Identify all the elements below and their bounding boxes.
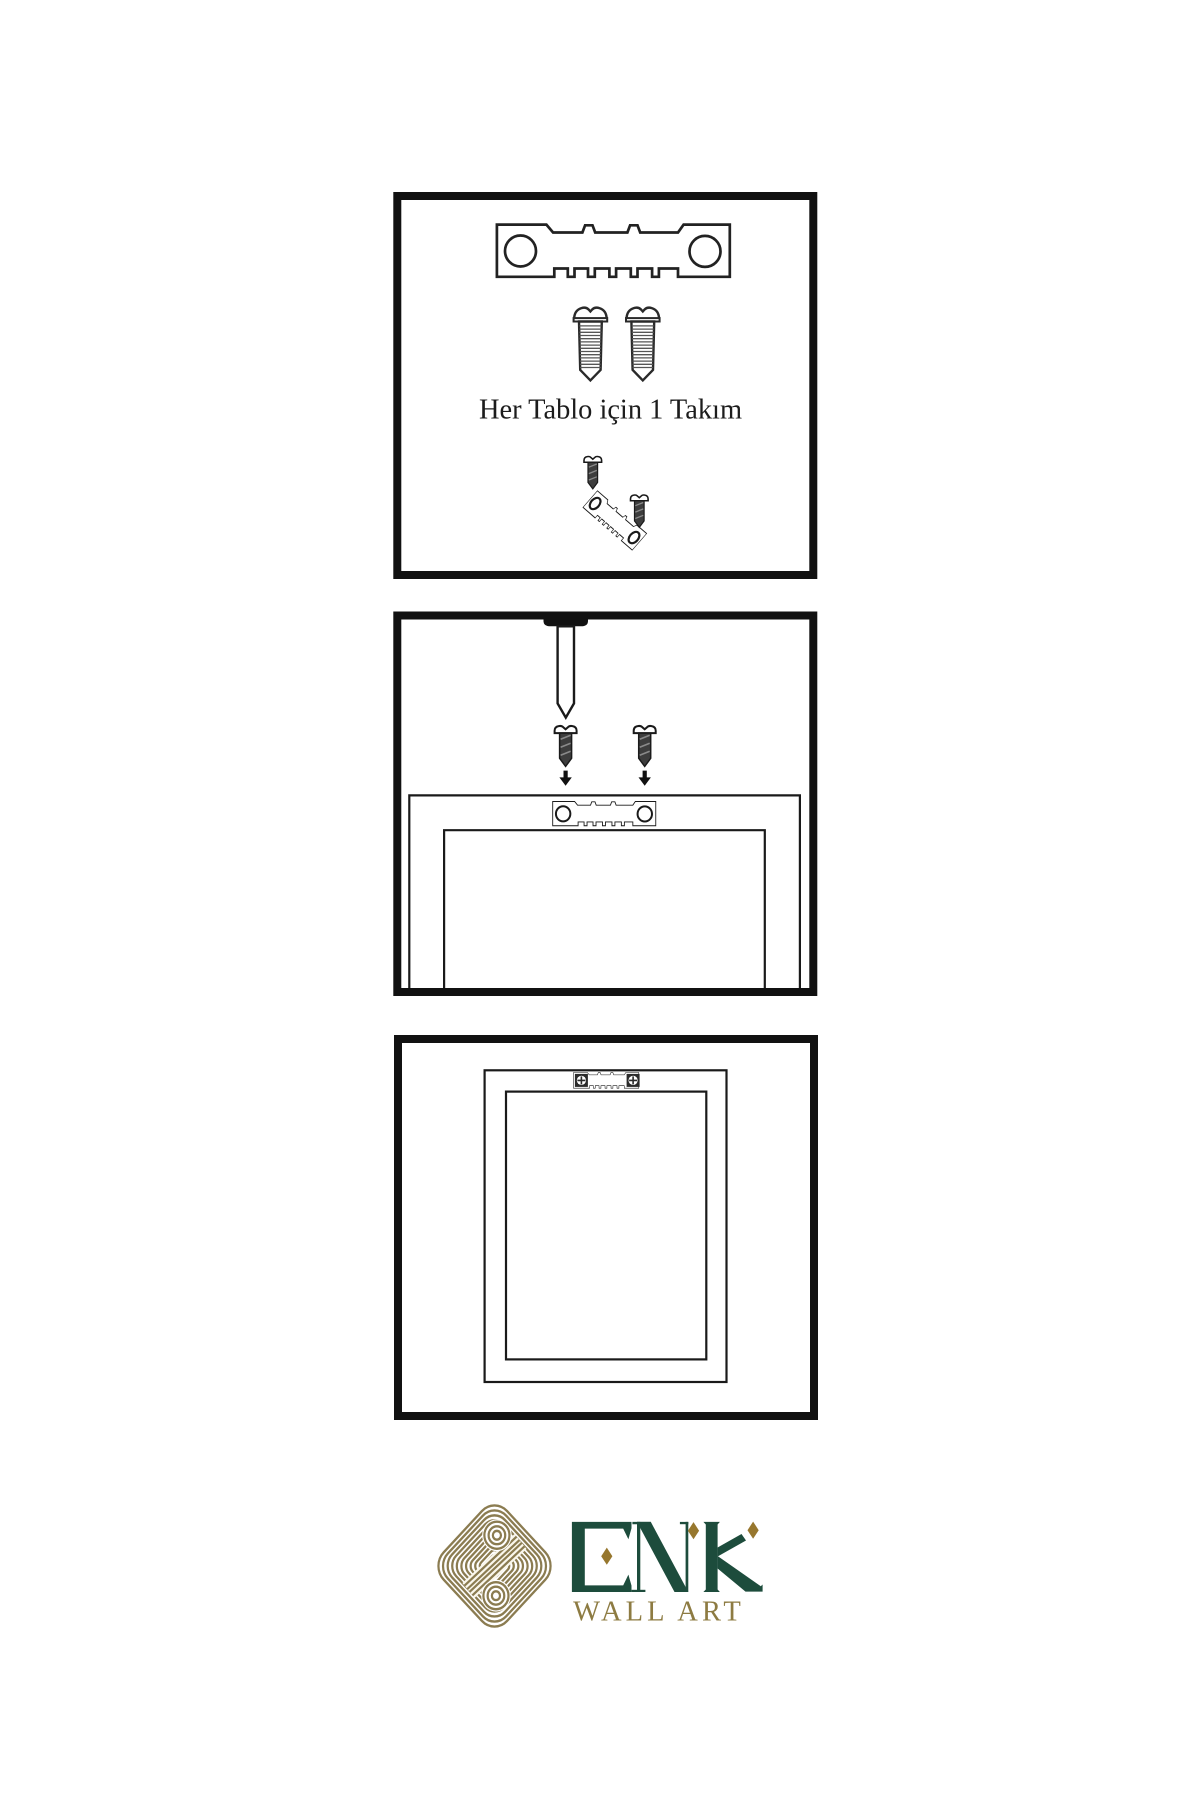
svg-text:Her Tablo için 1 Takım: Her Tablo için 1 Takım bbox=[479, 395, 742, 426]
svg-text:WALL ART: WALL ART bbox=[573, 1596, 745, 1627]
